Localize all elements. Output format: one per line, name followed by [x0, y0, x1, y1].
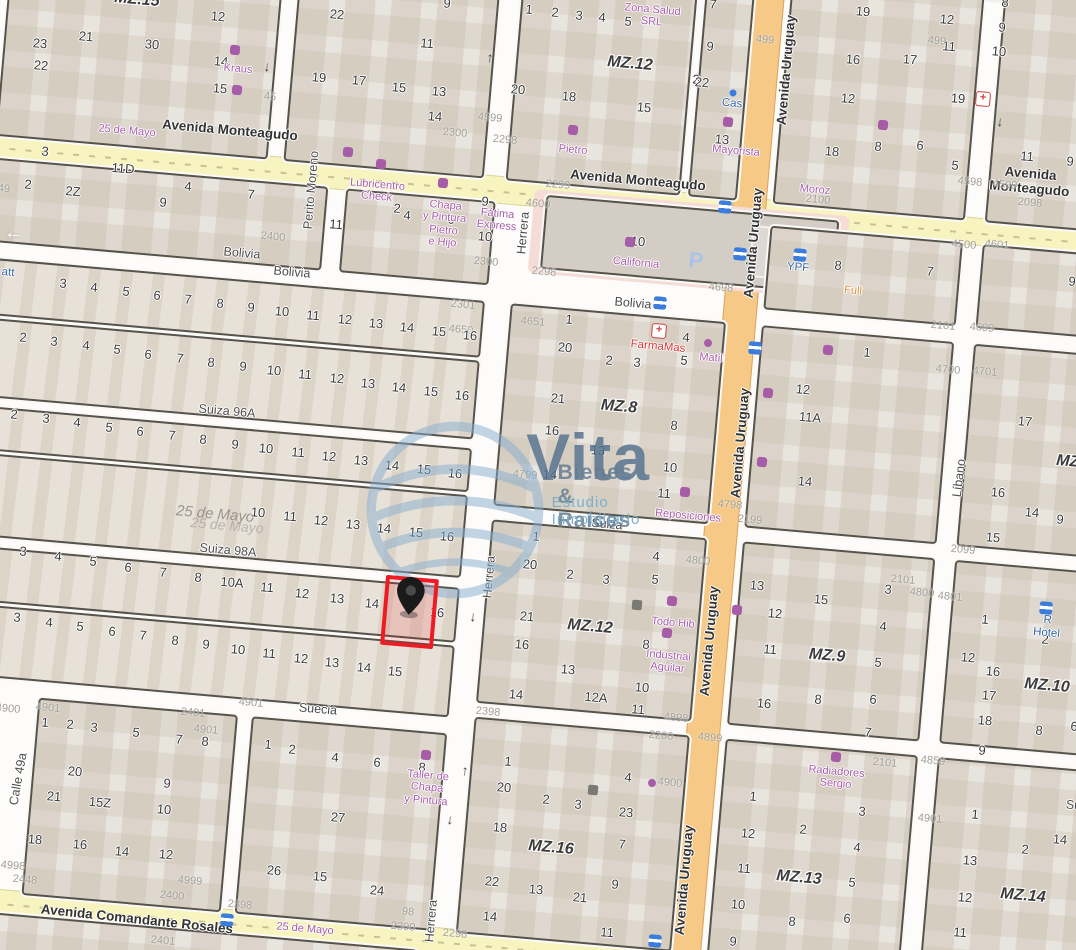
location-pin-icon	[390, 574, 430, 623]
property-marker[interactable]	[380, 575, 439, 649]
map-canvas[interactable]: 2321223012141522111917151314912345201815…	[0, 0, 1076, 950]
street-grid	[0, 0, 1076, 950]
